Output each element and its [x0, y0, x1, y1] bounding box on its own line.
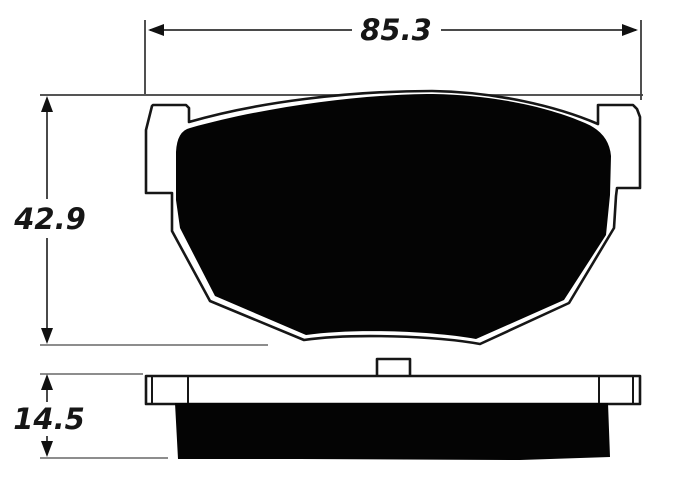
thickness-dimension-label: 14.5 — [13, 402, 85, 436]
pad-edge-view — [146, 359, 640, 460]
arrow-right-icon — [622, 24, 638, 36]
arrow-down-icon — [41, 328, 53, 344]
arrow-down-icon — [41, 441, 53, 457]
pad-face-view — [146, 91, 640, 344]
backing-plate-edge — [146, 376, 640, 404]
width-dimension: 85.3 — [148, 13, 638, 47]
diagram-canvas: 85.3 42.9 14.5 — [0, 0, 674, 478]
arrow-left-icon — [148, 24, 164, 36]
arrow-up-icon — [41, 96, 53, 112]
height-dimension-label: 42.9 — [13, 202, 86, 236]
friction-material-edge — [175, 403, 610, 460]
center-tab — [377, 359, 410, 377]
brake-pad-dimensional-diagram: 85.3 42.9 14.5 — [0, 0, 674, 478]
friction-material-face — [176, 94, 611, 339]
width-dimension-label: 85.3 — [360, 13, 432, 47]
arrow-up-icon — [41, 374, 53, 390]
height-dimension: 42.9 — [13, 96, 86, 344]
thickness-dimension: 14.5 — [13, 374, 85, 457]
